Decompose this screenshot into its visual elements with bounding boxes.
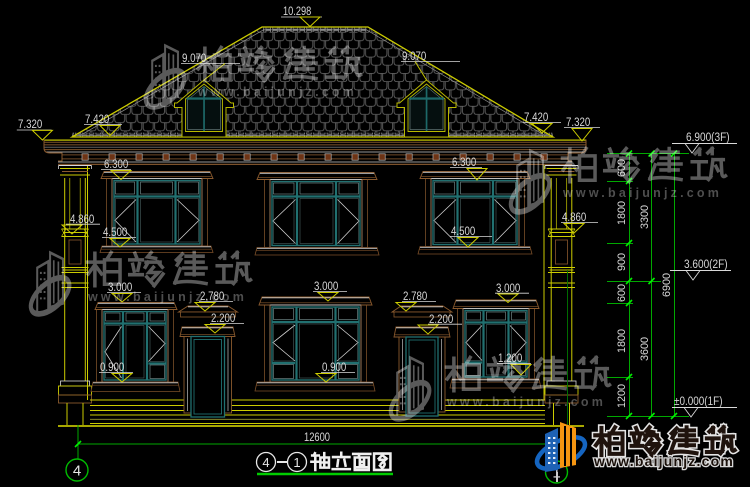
svg-text:12600: 12600 bbox=[304, 432, 330, 444]
svg-text:7.320: 7.320 bbox=[18, 119, 42, 131]
svg-text:±0.000(1F): ±0.000(1F) bbox=[674, 396, 723, 408]
svg-text:600: 600 bbox=[616, 284, 628, 302]
svg-text:6900: 6900 bbox=[661, 273, 673, 297]
svg-text:www.baijunjz.com: www.baijunjz.com bbox=[562, 186, 722, 200]
svg-text:3300: 3300 bbox=[639, 205, 651, 229]
svg-text:3600: 3600 bbox=[639, 337, 651, 361]
svg-text:www.baijunjz.com: www.baijunjz.com bbox=[197, 85, 357, 99]
svg-text:10.298: 10.298 bbox=[283, 6, 311, 18]
svg-text:4: 4 bbox=[73, 463, 81, 480]
svg-text:1: 1 bbox=[293, 455, 300, 470]
svg-text:4: 4 bbox=[262, 455, 269, 470]
svg-text:900: 900 bbox=[616, 253, 628, 271]
svg-text:www.baijunjz.com: www.baijunjz.com bbox=[446, 395, 606, 409]
svg-text:6.900(3F): 6.900(3F) bbox=[686, 132, 730, 144]
svg-text:1200: 1200 bbox=[616, 384, 628, 408]
svg-text:1800: 1800 bbox=[616, 201, 628, 225]
svg-text:www.baijunjz.com: www.baijunjz.com bbox=[87, 290, 247, 304]
svg-text:1800: 1800 bbox=[616, 329, 628, 353]
svg-text:3.600(2F): 3.600(2F) bbox=[684, 259, 728, 271]
svg-text:www.baijunjz.com: www.baijunjz.com bbox=[593, 453, 734, 469]
